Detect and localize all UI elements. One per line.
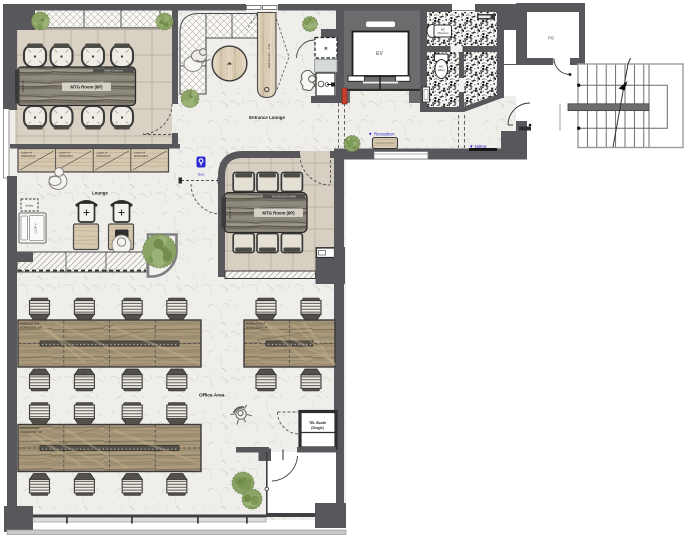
svg-text:PS: PS (548, 36, 554, 41)
svg-text:Wall Counter + PNL: Wall Counter + PNL (267, 43, 271, 68)
svg-text:TEL Booth: TEL Booth (309, 421, 326, 425)
svg-text:Entrance Lounge: Entrance Lounge (249, 115, 285, 120)
svg-text:▼ Reception: ▼ Reception (368, 132, 395, 137)
svg-text:W1400xD700 / 4P: W1400xD700 / 4P (246, 326, 268, 330)
svg-text:W1400xD700x8: W1400xD700x8 (20, 426, 40, 430)
svg-text:Sec: Sec (198, 172, 205, 177)
svg-text:W2100xD900+W450: W2100xD900+W450 (272, 195, 297, 199)
svg-text:Locker x4: Locker x4 (134, 151, 146, 155)
svg-text:65inch TV: 65inch TV (21, 80, 25, 92)
svg-text:EV: EV (376, 51, 383, 57)
svg-text:WC: WC (439, 64, 444, 68)
svg-text:W900xD515: W900xD515 (96, 154, 111, 158)
svg-text:Locker x4: Locker x4 (96, 151, 108, 155)
svg-text:MTG Room (8P): MTG Room (8P) (70, 85, 103, 90)
svg-text:divider: divider (25, 204, 33, 208)
svg-text:W1400xD700 / 4P: W1400xD700 / 4P (20, 326, 42, 330)
svg-text:W1400xD700x8: W1400xD700x8 (20, 322, 40, 326)
svg-text:(Women): (Women) (437, 31, 448, 35)
svg-text:Office Area: Office Area (199, 393, 225, 399)
svg-text:W1400xD700x8: W1400xD700x8 (246, 322, 266, 326)
svg-text:W900 Credenza: W900 Credenza (104, 69, 123, 73)
svg-text:(Single): (Single) (311, 426, 323, 430)
svg-text:COPY: COPY (34, 223, 38, 234)
svg-text:Locker x4: Locker x4 (21, 151, 33, 155)
svg-text:W900xD515: W900xD515 (59, 154, 74, 158)
svg-text:▼ Mirror: ▼ Mirror (469, 144, 487, 149)
svg-text:55inch TV: 55inch TV (228, 207, 232, 219)
svg-text:Lounge: Lounge (92, 191, 108, 196)
svg-text:W900xD515: W900xD515 (134, 154, 149, 158)
svg-text:φ900: φ900 (226, 62, 233, 66)
svg-text:WC: WC (441, 27, 446, 31)
svg-text:W900xD515: W900xD515 (21, 154, 36, 158)
svg-text:Locker x4: Locker x4 (59, 151, 71, 155)
svg-text:(Men): (Men) (438, 68, 445, 72)
svg-text:MTG Room (6P): MTG Room (6P) (262, 211, 295, 216)
svg-text:W1400xD700 / 4P: W1400xD700 / 4P (20, 430, 42, 434)
